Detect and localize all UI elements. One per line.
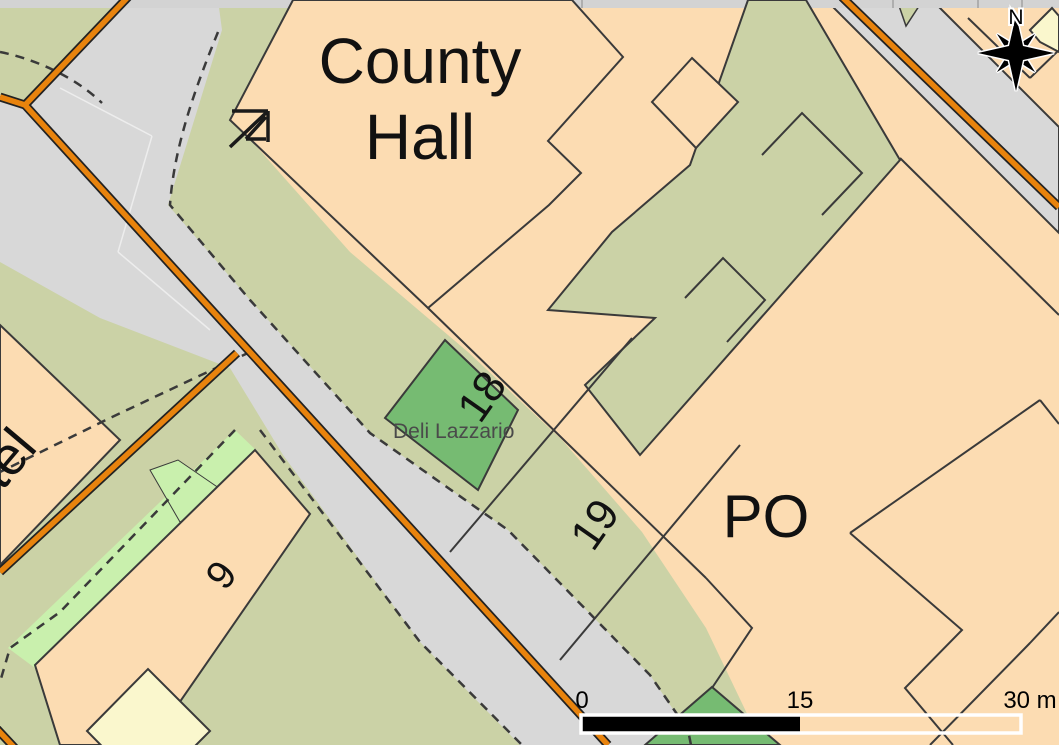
county-hall-label-line1: County xyxy=(319,25,522,97)
scale-start-label: 0 xyxy=(575,687,588,714)
scale-mid-label: 15 xyxy=(787,687,814,714)
scale-bar-filled-segment xyxy=(582,716,800,732)
deli-label: Deli Lazzario xyxy=(393,420,514,443)
post-office-label: PO xyxy=(723,483,810,550)
map-canvas[interactable]: County Hall PO 18 19 9 tel Deli Lazzario… xyxy=(0,0,1059,745)
county-hall-label-line2: Hall xyxy=(365,101,475,173)
scale-end-label: 30 m xyxy=(1003,687,1056,714)
compass-north-label: N xyxy=(1008,6,1023,29)
map-viewport[interactable]: County Hall PO 18 19 9 tel Deli Lazzario… xyxy=(0,0,1059,745)
